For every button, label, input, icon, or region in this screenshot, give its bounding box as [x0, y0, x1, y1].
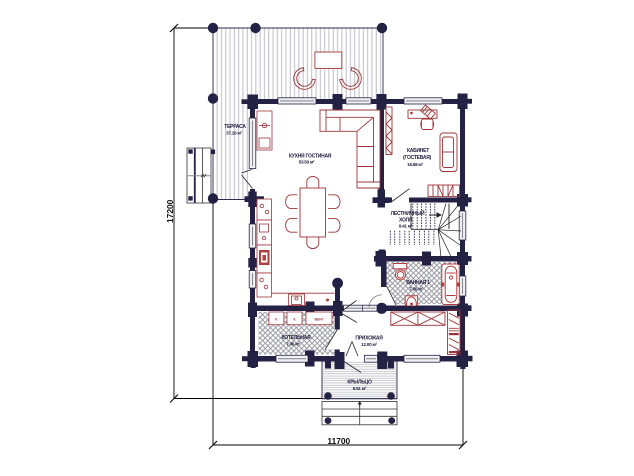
svg-text:КАБИНЕТ: КАБИНЕТ	[407, 148, 429, 154]
svg-text:11700: 11700	[327, 436, 350, 446]
svg-text:ТЕРРАСА: ТЕРРАСА	[224, 124, 246, 130]
svg-text:ВЕНТ: ВЕНТ	[315, 318, 324, 322]
svg-text:53.50 м²: 53.50 м²	[299, 160, 315, 165]
svg-text:ЛЕСТНИЧНЫЙ: ЛЕСТНИЧНЫЙ	[391, 209, 425, 217]
svg-text:9.41 м²: 9.41 м²	[399, 223, 413, 228]
svg-text:КОТЕЛЬНАЯ: КОТЕЛЬНАЯ	[282, 335, 312, 341]
svg-text:12.00 м²: 12.00 м²	[361, 342, 377, 347]
svg-text:7.36 м²: 7.36 м²	[286, 341, 300, 346]
svg-text:(ГОСТЕВАЯ): (ГОСТЕВАЯ)	[403, 155, 432, 161]
svg-text:ВАННАЯ 1: ВАННАЯ 1	[406, 280, 430, 286]
svg-text:КРЫЛЬЦО: КРЫЛЬЦО	[347, 380, 372, 386]
svg-text:7.00 м²: 7.00 м²	[409, 287, 423, 292]
svg-text:ПРИХОЖАЯ: ПРИХОЖАЯ	[355, 336, 383, 342]
svg-text:6.51 м²: 6.51 м²	[353, 386, 367, 391]
svg-text:17200: 17200	[165, 199, 175, 223]
svg-text:15.58 м²: 15.58 м²	[407, 162, 423, 167]
svg-text:37.16 м²: 37.16 м²	[226, 131, 242, 136]
